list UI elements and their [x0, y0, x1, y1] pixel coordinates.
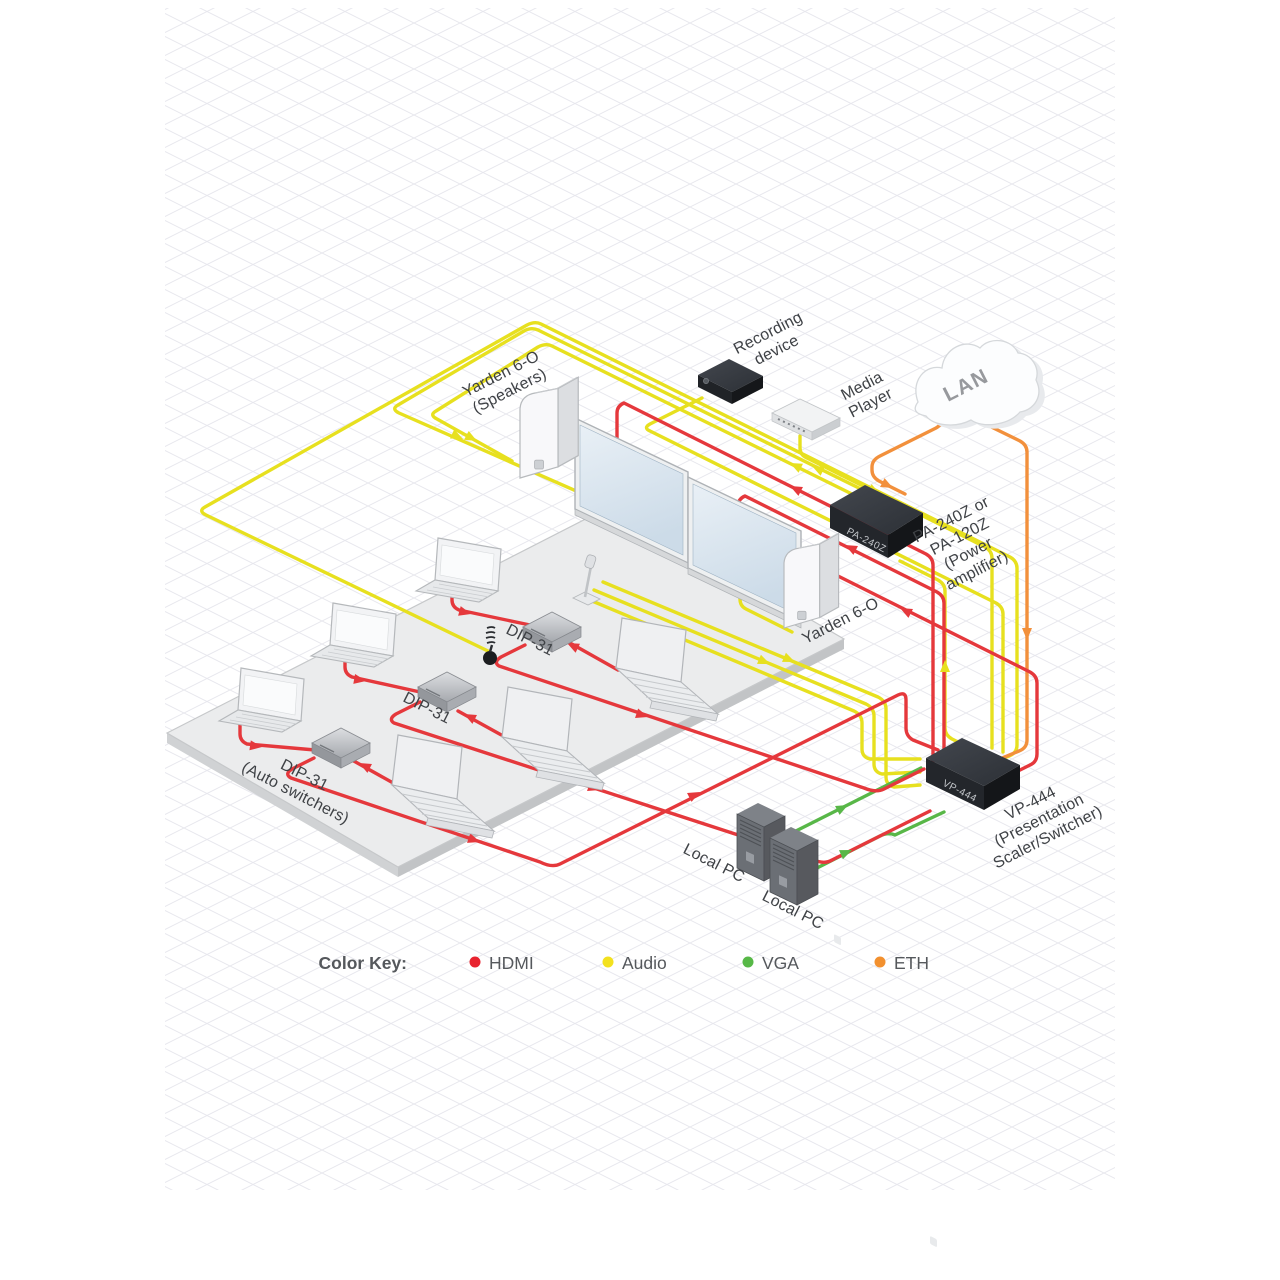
- av-system-diagram: LAN PA-240Z VP-444 Yarden 6-O (Speakers)…: [0, 0, 1280, 1280]
- eth-dot-icon: [875, 957, 886, 968]
- diagram-canvas: LAN PA-240Z VP-444 Yarden 6-O (Speakers)…: [0, 0, 1280, 1280]
- vga-dot-icon: [743, 957, 754, 968]
- hdmi-dot-icon: [470, 957, 481, 968]
- legend-hdmi: HDMI: [489, 953, 534, 973]
- legend-audio: Audio: [622, 953, 667, 973]
- legend-vga: VGA: [762, 953, 799, 973]
- legend-eth: ETH: [894, 953, 929, 973]
- kramer-logo-icon: [930, 1236, 937, 1248]
- legend-title: Color Key:: [319, 953, 407, 973]
- audio-dot-icon: [603, 957, 614, 968]
- camera-lens-icon: [703, 378, 708, 383]
